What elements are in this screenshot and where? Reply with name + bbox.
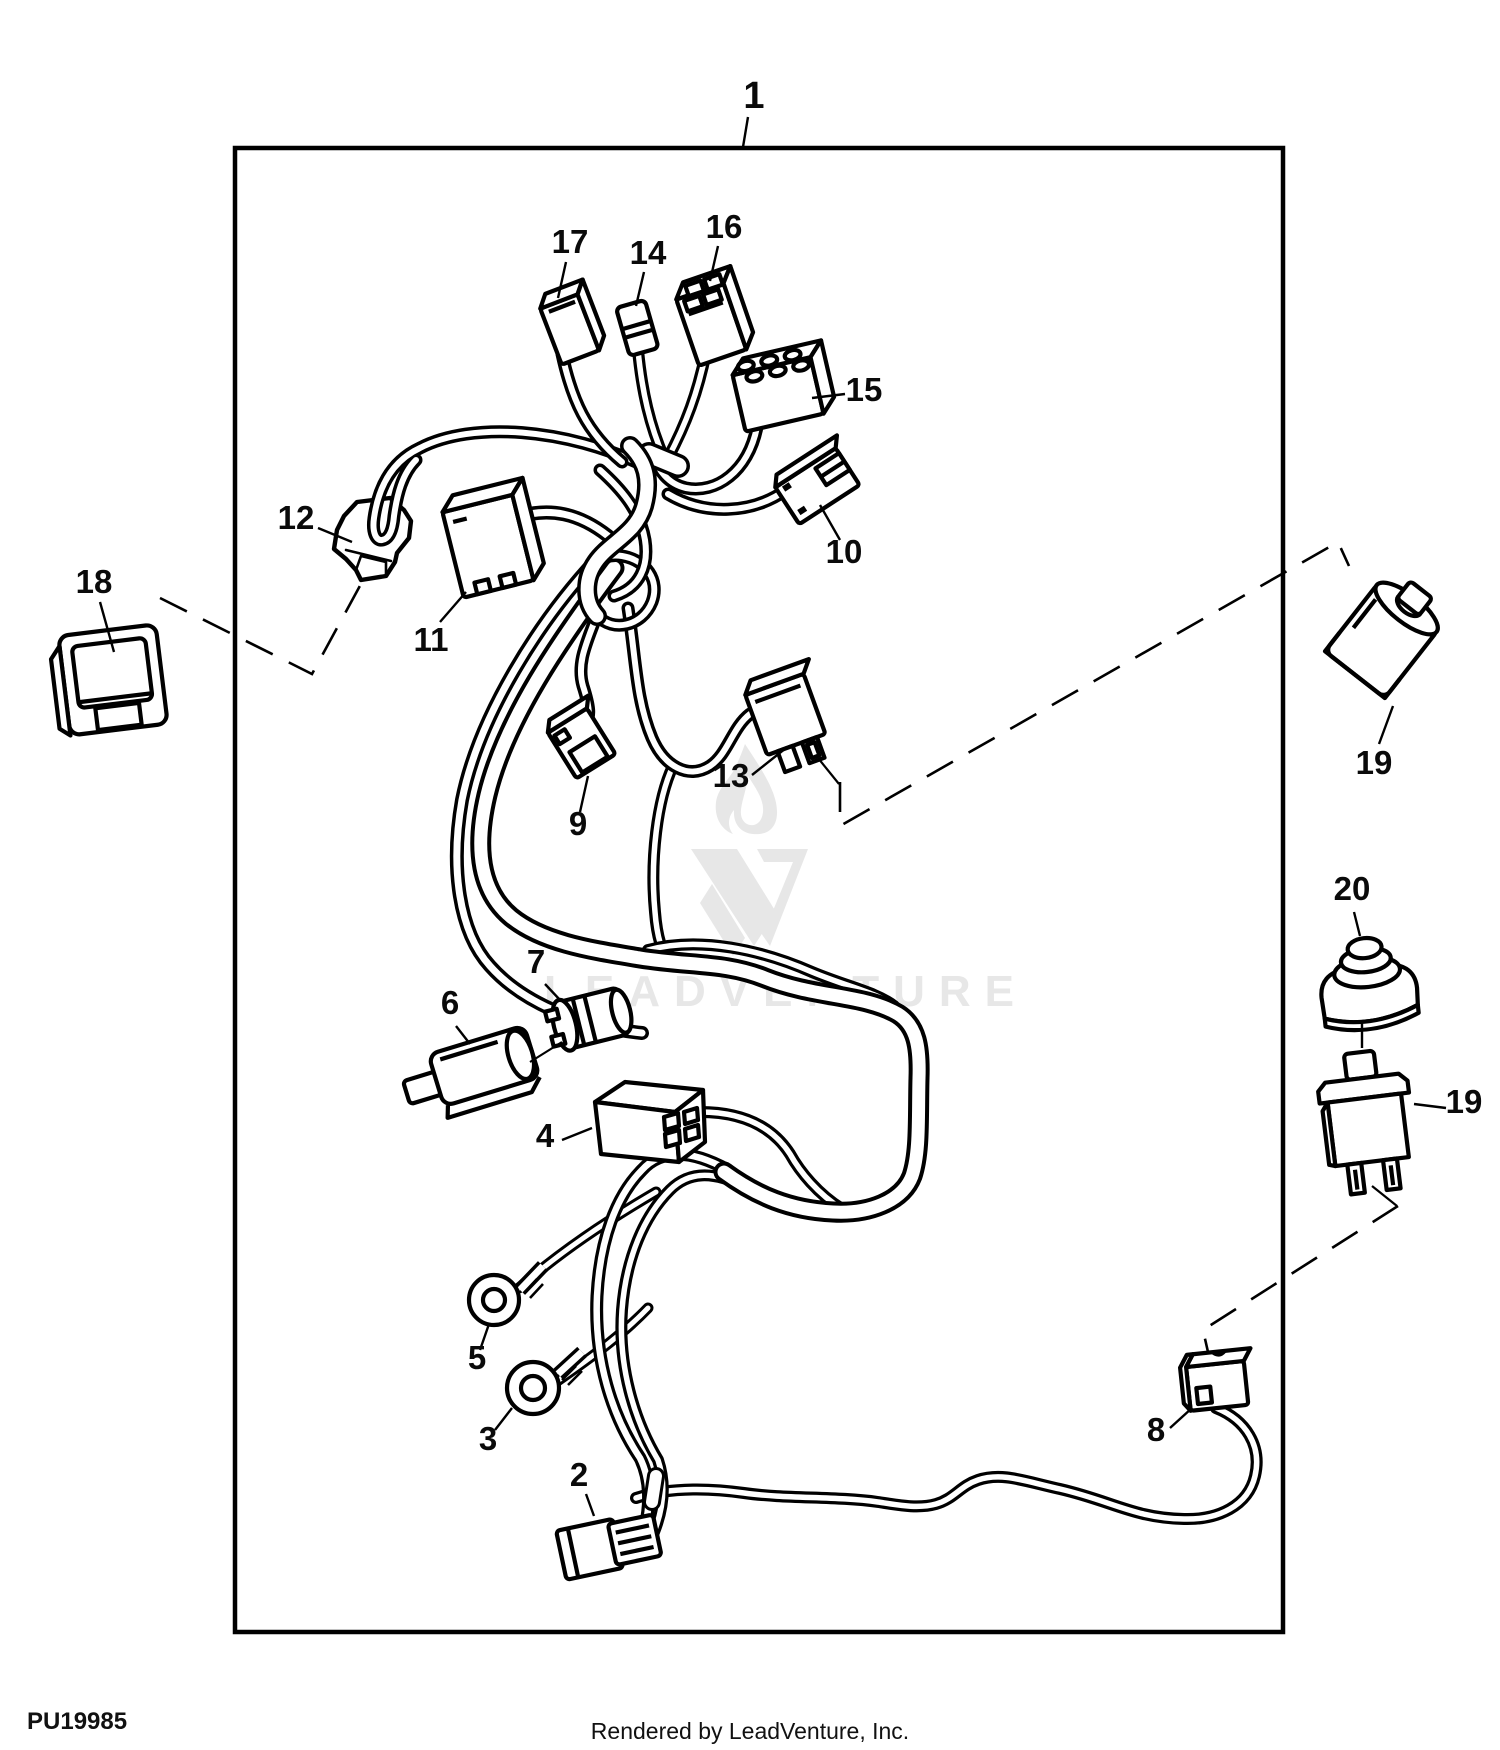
svg-text:5: 5 [468, 1339, 486, 1376]
svg-text:19: 19 [1356, 744, 1393, 781]
svg-text:13: 13 [713, 757, 750, 794]
svg-text:19: 19 [1446, 1083, 1483, 1120]
svg-text:3: 3 [479, 1420, 497, 1457]
svg-text:Rendered by LeadVenture, Inc.: Rendered by LeadVenture, Inc. [591, 1718, 909, 1744]
svg-text:18: 18 [76, 563, 113, 600]
svg-text:14: 14 [630, 234, 667, 271]
svg-text:8: 8 [1147, 1411, 1165, 1448]
svg-text:7: 7 [527, 943, 545, 980]
svg-text:10: 10 [826, 533, 863, 570]
svg-text:12: 12 [278, 499, 315, 536]
svg-text:6: 6 [441, 984, 459, 1021]
svg-text:16: 16 [706, 208, 743, 245]
svg-text:11: 11 [414, 621, 449, 658]
svg-text:1: 1 [743, 75, 764, 117]
svg-text:15: 15 [846, 371, 883, 408]
svg-text:9: 9 [569, 805, 587, 842]
svg-text:20: 20 [1334, 870, 1371, 907]
svg-text:17: 17 [552, 223, 589, 260]
svg-text:PU19985: PU19985 [27, 1708, 127, 1735]
svg-text:4: 4 [536, 1117, 555, 1154]
svg-text:2: 2 [570, 1456, 588, 1493]
